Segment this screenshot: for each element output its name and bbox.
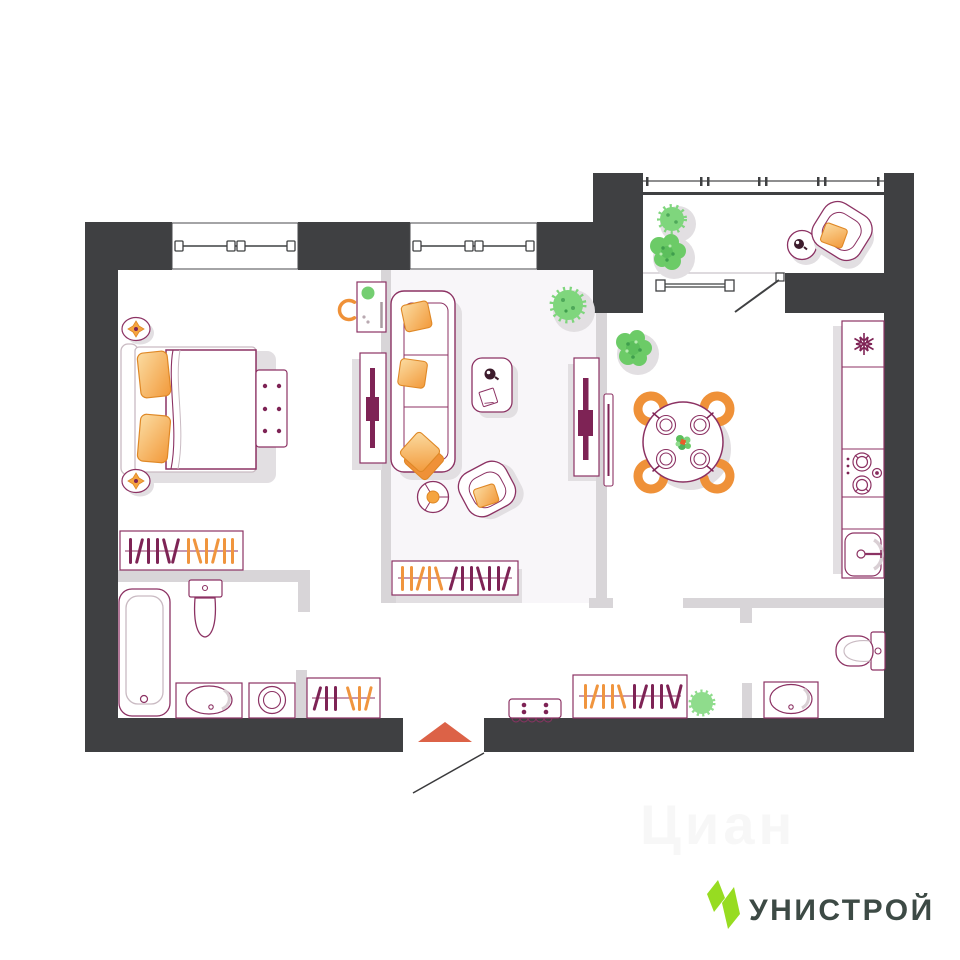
washbasin — [176, 683, 242, 718]
wardrobe-bedroom — [120, 531, 243, 570]
developer-logo: УНИСТРОЙ — [695, 876, 935, 938]
wardrobe-living — [392, 561, 522, 603]
entry-door-leaf — [413, 753, 484, 793]
balcony-bush-plant — [650, 234, 695, 279]
window-living — [410, 223, 537, 269]
double-bed — [121, 344, 256, 475]
toilet — [189, 580, 222, 637]
wardrobe-hall-small — [307, 678, 380, 718]
toilet-wc — [836, 632, 885, 670]
bed-pillow — [137, 351, 172, 399]
bathroom — [119, 580, 295, 718]
kitchen-sink — [845, 533, 882, 576]
shoe-bench — [509, 699, 561, 722]
wardrobe-hall — [573, 675, 687, 718]
balcony — [650, 195, 883, 279]
kitchen-dining — [604, 321, 884, 578]
desk — [357, 282, 386, 332]
washbasin-wc — [764, 682, 818, 718]
sofa-pillow — [401, 300, 433, 332]
bush-plant-kitchen — [616, 330, 659, 375]
tv-console-living — [568, 358, 599, 481]
balcony-door-leaf — [735, 280, 779, 312]
photo-watermark: Циан — [640, 792, 960, 862]
hallway — [509, 675, 713, 722]
kitchen-counter — [833, 321, 884, 578]
spiky-plant-living — [553, 290, 595, 332]
logo-wordmark: УНИСТРОЙ — [749, 894, 935, 928]
hall-plant — [691, 692, 713, 714]
bench-chest — [256, 370, 287, 447]
bed-pillow — [137, 414, 171, 463]
window-bedroom — [172, 223, 298, 269]
floor-lamp — [418, 482, 449, 513]
coffee-table — [472, 358, 518, 418]
desk-chair — [339, 300, 354, 319]
unistroy-logo-icon — [695, 878, 743, 936]
sofa — [391, 291, 455, 481]
desk-plant — [362, 287, 375, 300]
bathtub — [119, 589, 170, 716]
nightstand-lamp — [122, 318, 154, 345]
wall-tv-kitchen — [604, 394, 613, 486]
dining-table — [643, 402, 723, 482]
balcony-armchair — [803, 195, 884, 274]
entry-arrow — [418, 722, 472, 742]
bedroom — [120, 282, 386, 570]
tv-console-bedroom — [352, 353, 386, 470]
wc — [764, 632, 885, 718]
cup — [485, 369, 496, 380]
washing-machine — [249, 683, 295, 718]
floor-plan-page: Циан УНИСТРОЙ — [0, 0, 960, 960]
sofa-pillow — [397, 358, 427, 388]
